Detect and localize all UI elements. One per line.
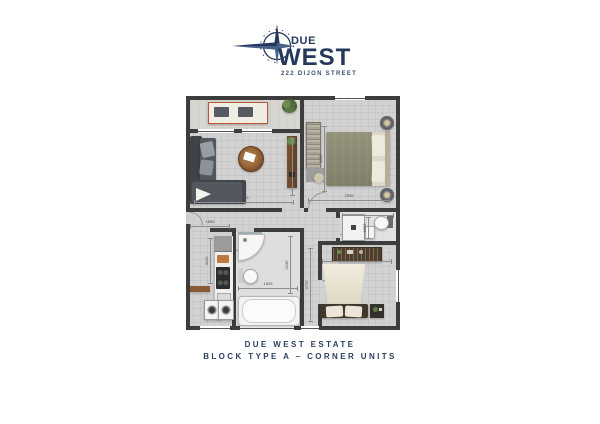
headboard (385, 131, 390, 187)
dim-wc-depth: 1005 (368, 217, 369, 239)
fridge (214, 236, 232, 252)
bed-pillow (371, 135, 385, 157)
bedroom2-nightstand (370, 304, 384, 318)
floorplan: 2999 3080 2995 3115 2199 1005 1850 3110 … (186, 96, 400, 330)
bedroom2-window (396, 270, 400, 302)
bathroom-window (240, 326, 294, 330)
bathtub (238, 296, 300, 326)
dresser-plant (337, 250, 341, 254)
wood-shelf (190, 286, 210, 292)
dim-living-depth: 3080 (292, 138, 293, 196)
entry-door-arc (190, 212, 203, 225)
nightstand-round (380, 116, 394, 130)
nightstand-decor (379, 308, 382, 311)
dim-kitchen-width: 1850 (190, 226, 230, 227)
living-balcony-door (242, 129, 272, 133)
faucet (243, 238, 247, 242)
balcony-plant (282, 99, 297, 113)
toilet (243, 269, 258, 284)
dim-bedroom1-width: 2995 (308, 200, 390, 201)
dryer (218, 300, 234, 320)
dim-wc-width: 2199 (342, 215, 394, 216)
dim-kitchen-depth: 3110 (210, 238, 211, 284)
sofa-pillow (200, 141, 216, 158)
dim-bedroom1-depth: 3115 (324, 126, 325, 192)
bed-single (320, 264, 368, 318)
throw-blanket (196, 188, 211, 201)
bedroom1-window (335, 96, 365, 100)
shower-drain (351, 225, 356, 230)
living-window-left (198, 129, 234, 133)
bed-pillow (326, 306, 344, 318)
coffee-table (238, 146, 264, 172)
dim-bathroom-width: 1825 (238, 288, 298, 289)
wall-living-hall (186, 208, 282, 212)
estate-name: DUE WEST ESTATE (0, 341, 600, 349)
nightstand-plant (373, 307, 378, 312)
bench-cushion (214, 107, 229, 117)
wall-living-bedroom1 (300, 100, 304, 208)
bed-pillow (371, 161, 385, 183)
logo-text-bottom: WEST (278, 46, 351, 70)
logo: DUE WEST 222 DIJON STREET (0, 0, 600, 90)
bed-pillow (345, 306, 363, 318)
bench-cushion (238, 107, 253, 117)
dim-bathroom-depth: 2135 (290, 236, 291, 294)
wall-wc-bottom (318, 241, 400, 245)
wall-exterior-left-lower (186, 224, 190, 330)
corridor-window (301, 326, 319, 330)
book (243, 151, 256, 162)
duvet-cream (323, 264, 365, 306)
dim-bedroom2-width: 2105 (322, 261, 392, 262)
dim-bedroom2-depth: 2725 (310, 248, 311, 322)
cutting-board (217, 255, 229, 263)
sofa-pillow (199, 159, 214, 175)
toilet (374, 216, 389, 230)
kitchen-window (200, 326, 230, 330)
duvet-olive (326, 132, 372, 186)
bedroom1-pouf (314, 173, 324, 183)
logo-address: 222 DIJON STREET (281, 71, 357, 77)
cooktop (216, 267, 230, 289)
bed-double (326, 132, 390, 186)
bathtub-basin (242, 299, 296, 323)
block-type-label: BLOCK TYPE A – CORNER UNITS (0, 353, 600, 361)
dim-living-width: 2999 (194, 202, 294, 203)
balcony-bench (208, 102, 268, 124)
floorplan-page: DUE WEST 222 DIJON STREET (0, 0, 600, 424)
wall-bathroom-corridor (300, 228, 304, 326)
